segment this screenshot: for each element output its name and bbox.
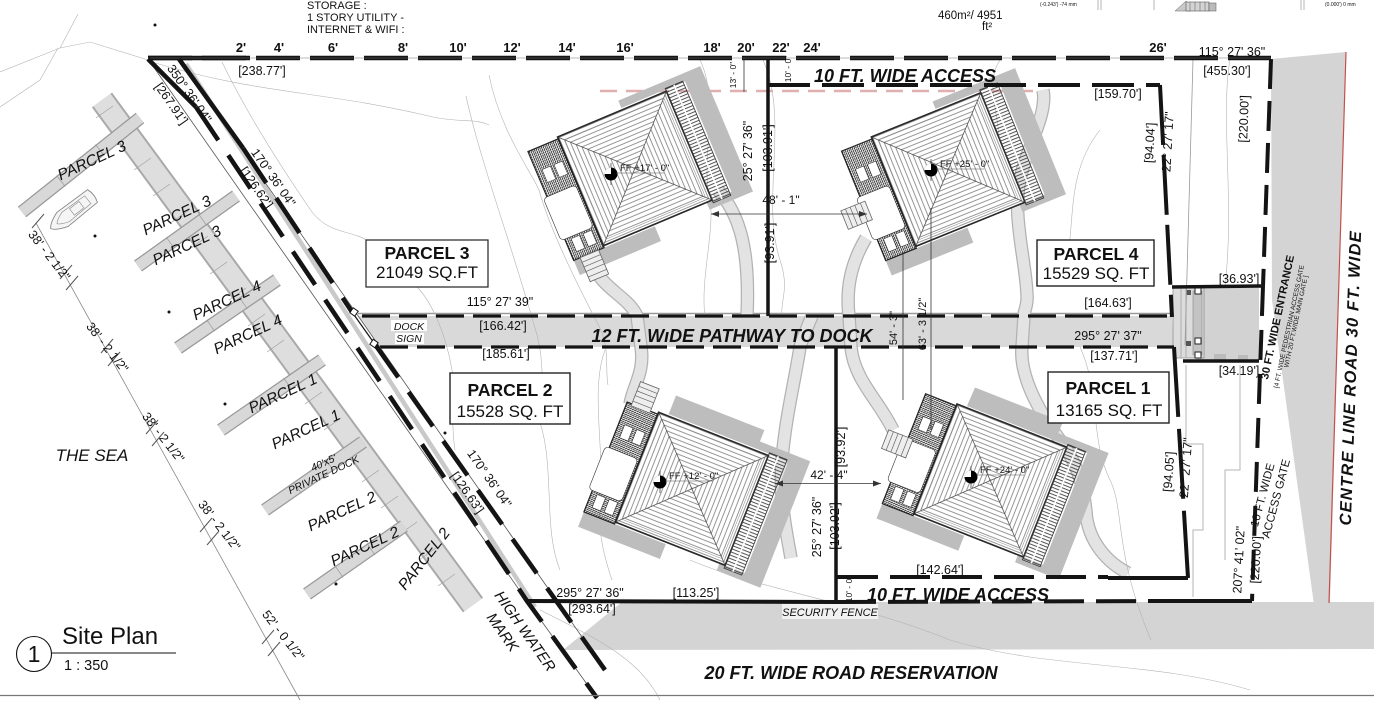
svg-text:20 FT. WIDE ROAD RESERVATION: 20 FT. WIDE ROAD RESERVATION [703,663,998,683]
svg-text:SECURITY FENCE: SECURITY FENCE [782,607,878,619]
svg-text:[94.05']: [94.05'] [1161,451,1178,493]
svg-text:PARCEL 3: PARCEL 3 [55,138,129,185]
svg-text:[142.64']: [142.64'] [916,563,964,577]
svg-text:[93.91']: [93.91'] [763,223,777,264]
svg-text:FF +25' - 0": FF +25' - 0" [940,159,989,170]
svg-text:16': 16' [616,40,634,55]
svg-text:38' - 2 1/2": 38' - 2 1/2" [139,410,187,466]
svg-text:295° 27' 36": 295° 27' 36" [556,586,623,600]
svg-text:(0.000') 0 mm: (0.000') 0 mm [1325,2,1356,8]
svg-text:295° 27' 37": 295° 27' 37" [1074,329,1141,343]
svg-text:115° 27' 39": 115° 27' 39" [467,295,534,309]
svg-text:21049 SQ.FT: 21049 SQ.FT [376,263,478,282]
svg-text:13' - 0": 13' - 0" [728,62,738,88]
svg-text:FF +12' - 0": FF +12' - 0" [669,471,718,482]
svg-text:[185.61']: [185.61'] [482,347,530,361]
svg-text:ft²: ft² [982,21,992,33]
svg-text:42' - 4": 42' - 4" [810,468,847,482]
svg-text:15528 SQ. FT: 15528 SQ. FT [457,402,564,421]
svg-text:STORAGE :: STORAGE : [307,0,367,12]
svg-text:[137.71']: [137.71'] [1090,349,1138,363]
svg-text:Site Plan: Site Plan [62,623,158,650]
svg-text:52' - 0 1/2": 52' - 0 1/2" [259,608,307,664]
svg-text:THE SEA: THE SEA [56,446,129,465]
svg-text:10 FT. WIDE ACCESS: 10 FT. WIDE ACCESS [867,585,1049,605]
svg-text:[93.92']: [93.92'] [834,427,848,468]
svg-text:115° 27' 36": 115° 27' 36" [1199,45,1266,59]
svg-text:[455.30']: [455.30'] [1203,64,1251,78]
svg-text:22° 27' 17": 22° 27' 17" [1159,111,1176,172]
svg-text:10' - 0": 10' - 0" [783,56,793,82]
svg-text:22': 22' [772,40,790,55]
svg-text:15529 SQ. FT: 15529 SQ. FT [1043,264,1150,283]
svg-text:14': 14' [558,40,576,55]
svg-text:460m²/ 4951: 460m²/ 4951 [938,10,1003,22]
svg-text:[220.00']: [220.00'] [1248,536,1264,584]
svg-text:[159.70']: [159.70'] [1094,87,1142,101]
svg-text:PARCEL 1: PARCEL 1 [1066,378,1151,398]
svg-text:INTERNET & WIFI :: INTERNET & WIFI : [307,24,405,36]
svg-text:PARCEL 2: PARCEL 2 [305,489,379,536]
svg-text:10 FT. WIDE ACCESS: 10 FT. WIDE ACCESS [814,66,996,86]
svg-text:[113.25']: [113.25'] [673,586,720,600]
svg-text:[164.63']: [164.63'] [1084,296,1132,310]
svg-text:1 : 350: 1 : 350 [64,658,108,674]
svg-text:54' - 3": 54' - 3" [888,311,900,345]
svg-text:[293.64']: [293.64'] [568,602,616,616]
svg-text:[103.92']: [103.92'] [828,502,842,550]
svg-text:25° 27' 36": 25° 27' 36" [741,121,755,181]
svg-text:PARCEL 4: PARCEL 4 [1054,244,1139,264]
svg-text:DOCK: DOCK [394,321,425,333]
svg-text:25° 27' 36": 25° 27' 36" [810,497,824,557]
svg-text:12': 12' [503,40,521,55]
svg-text:18': 18' [703,40,721,55]
svg-text:[166.42']: [166.42'] [479,319,527,333]
svg-text:[94.04']: [94.04'] [1142,122,1158,163]
svg-text:38' - 2 1/2": 38' - 2 1/2" [25,228,73,284]
svg-text:SIGN: SIGN [396,333,422,345]
svg-text:(-0.243') -74 mm: (-0.243') -74 mm [1040,2,1077,8]
svg-text:38' - 2 1/2": 38' - 2 1/2" [195,498,243,554]
svg-text:FF +24' - 0": FF +24' - 0" [980,465,1029,476]
svg-text:207° 41' 02": 207° 41' 02" [1230,526,1248,594]
svg-text:PARCEL 2: PARCEL 2 [468,380,553,400]
svg-text:10': 10' [449,40,467,55]
svg-text:12 FT. WıDE PATHWAY TO DOCK: 12 FT. WıDE PATHWAY TO DOCK [591,326,874,346]
svg-text:FF +17' - 0": FF +17' - 0" [620,163,669,174]
svg-text:1 STORY UTILITY -: 1 STORY UTILITY - [307,12,404,24]
svg-text:1: 1 [28,641,41,667]
svg-text:[220.00']: [220.00'] [1236,95,1252,143]
svg-text:PARCEL 3: PARCEL 3 [385,243,470,263]
svg-text:[103.91']: [103.91'] [761,124,775,172]
svg-text:[36.93']: [36.93'] [1219,272,1260,286]
svg-text:63' - 3 1/2": 63' - 3 1/2" [917,298,929,351]
svg-text:10' - 0": 10' - 0" [844,576,854,602]
svg-text:24': 24' [803,40,821,55]
svg-text:CENTRE LINE ROAD 30 FT. WIDE: CENTRE LINE ROAD 30 FT. WIDE [1337,230,1365,526]
svg-text:22° 27' 17": 22° 27' 17" [1177,437,1195,498]
svg-text:PARCEL 2: PARCEL 2 [328,524,402,571]
svg-text:2': 2' [236,40,246,55]
svg-text:26': 26' [1149,40,1167,55]
svg-text:[34.19']: [34.19'] [1219,364,1260,378]
svg-text:20': 20' [737,40,755,55]
svg-text:8': 8' [398,40,408,55]
svg-text:38' - 2 1/2": 38' - 2 1/2" [83,320,131,376]
svg-text:13165 SQ. FT: 13165 SQ. FT [1056,401,1163,420]
svg-text:6': 6' [328,40,338,55]
svg-text:4': 4' [274,40,284,55]
svg-text:48' - 1": 48' - 1" [762,193,799,207]
svg-text:[238.77']: [238.77'] [238,64,286,78]
